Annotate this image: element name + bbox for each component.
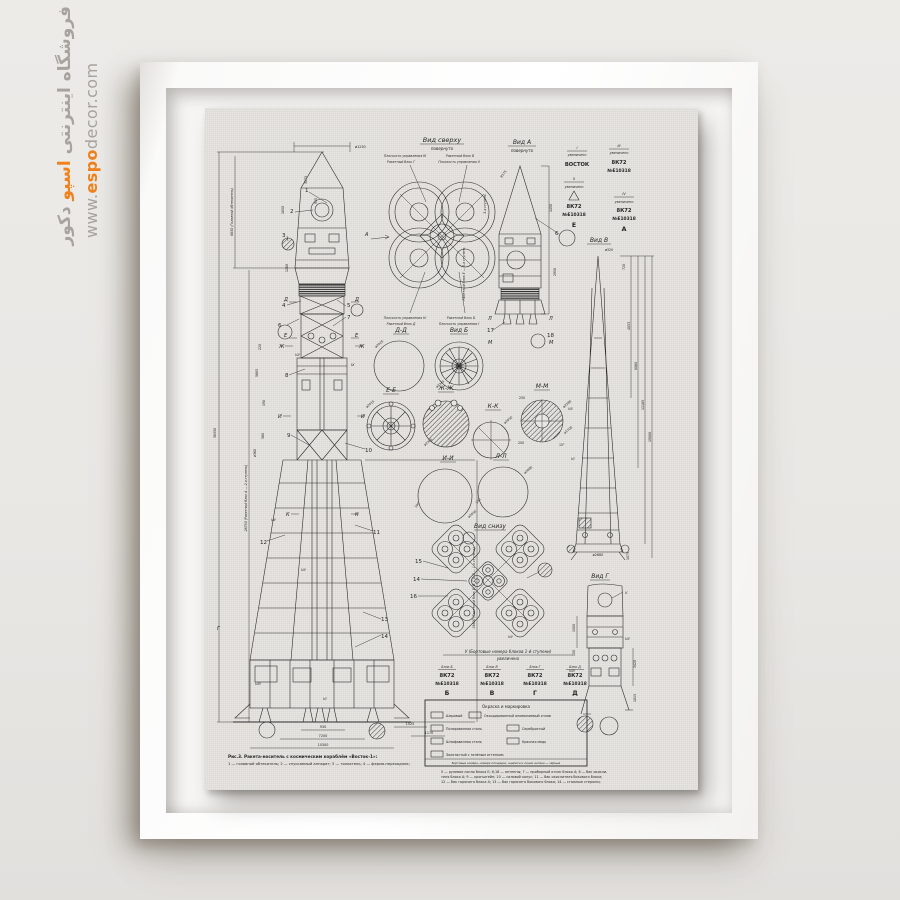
mark-vii-2: VII xyxy=(271,518,276,522)
letter-d-r: Д xyxy=(354,297,359,303)
dim-720: 720 xyxy=(622,264,626,270)
stamp-iii-enl: увеличено xyxy=(609,151,629,155)
top-view-title: Вид сверху xyxy=(423,136,462,144)
legend-title: Окраска и маркировка xyxy=(482,704,531,709)
caption-r1: 5 — рулевое сопло блока Е; 6,18 — антенн… xyxy=(441,770,608,774)
mark-vii-1: VII xyxy=(295,353,300,357)
view-b-vi: VI xyxy=(571,457,575,461)
section-vid-b-title: Вид Б xyxy=(450,327,468,334)
section-ee xyxy=(367,402,415,450)
tablev-title: V (Бортовые номера блоков 1-й ступени) xyxy=(465,649,552,654)
col-g-head: Блок Г xyxy=(530,665,541,669)
letter-k-l: К xyxy=(286,512,290,518)
section-dd xyxy=(374,341,424,391)
swatch-copper xyxy=(507,738,519,744)
letter-i-l: И xyxy=(278,414,282,420)
callout-9: 9 xyxy=(287,433,291,439)
arrow-a-label: А xyxy=(364,232,369,238)
section-ii xyxy=(418,469,472,523)
block-numbers-table: V (Бортовые номера блоков 1-й ступени) у… xyxy=(434,649,587,697)
interstage-and-stage2 xyxy=(295,268,349,460)
view-b-cone xyxy=(567,256,629,560)
cluster-vii: VII xyxy=(508,635,513,639)
watermark-brand-fa: اسپو xyxy=(55,160,75,200)
dim-560: 560 xyxy=(261,433,265,439)
plane-ii-label: Плоскость управления II xyxy=(438,160,479,164)
stamp-ii-serial: №Е10318 xyxy=(561,212,586,218)
callout-18: 18 xyxy=(547,333,554,339)
dim-10300: 10300 xyxy=(318,743,329,747)
section-kk-title: К-К xyxy=(488,403,499,410)
callout-2: 2 xyxy=(290,209,294,215)
letter-zh-r: Ж xyxy=(358,344,365,350)
block-b-label: Ракетный блок Б xyxy=(447,316,476,320)
dim-930: 930 xyxy=(320,725,326,729)
callout-1: 1 xyxy=(305,188,309,194)
plane-iii-label: Плоскость управления III xyxy=(384,154,426,158)
caption-r2: теля блока А; 9 — кронштейн; 10 — силово… xyxy=(441,775,602,779)
mark-vii-3: VII xyxy=(301,568,306,572)
dim-1450: 1450 xyxy=(549,204,553,212)
swatch-silver xyxy=(507,725,519,731)
swatch-oxid xyxy=(469,712,481,718)
dim-1850: 1850 xyxy=(281,206,285,214)
letter-l-r: Л xyxy=(548,316,553,322)
dim-2080: ø2080 xyxy=(523,465,533,475)
view-b-title: Вид В xyxy=(590,237,608,244)
marking-stamps: I увеличено ВОСТОК III увеличено 8К72 №Е… xyxy=(561,144,636,233)
letter-g: Г xyxy=(217,626,221,632)
tablev-col-v: Блок В 8К72 №Е10318 В xyxy=(479,665,504,697)
letter-e-l: Е xyxy=(284,333,288,339)
col-g-letter: Г xyxy=(533,690,537,697)
bottom-view-title: Вид снизу xyxy=(474,523,506,530)
dim-fairing: 6650 (Головной обтекатель) xyxy=(230,188,234,236)
swatch-ground xyxy=(431,738,443,744)
dim-1500: 1500 xyxy=(572,624,576,632)
legend-silver: Серебристый xyxy=(522,727,545,731)
stamp-i: I xyxy=(577,146,578,150)
legend-oxid: Оксидированный алюминиевый сплав xyxy=(484,714,551,718)
dim-stage2: 28750 (Ракетный блок А — 2-я ступень) xyxy=(244,465,248,532)
view-a-cone xyxy=(495,166,545,324)
col-b-code: 8К72 xyxy=(439,673,454,679)
col-v-letter: В xyxy=(490,690,495,697)
letter-i-r: И xyxy=(361,414,365,420)
dim-5685: 5685 xyxy=(255,369,259,377)
dim-2680: ø2680 xyxy=(593,553,604,557)
stamp-iv-code: 8К72 xyxy=(616,208,631,214)
top-view-rotated: повернуто xyxy=(431,146,454,151)
cross-sections: Д-Д ø2420 Вид Б ø2345 Е-Е ø2415 Ж-Ж xyxy=(365,327,573,523)
dim-total-length: 38350 xyxy=(213,428,217,438)
callout-10: 10 xyxy=(365,448,372,454)
stamp-iv: IV xyxy=(622,192,626,196)
callout-8: 8 xyxy=(285,373,289,379)
block-e-note: Ракетный блок Е — 3-я ступень xyxy=(462,247,466,300)
stamp-vostok: ВОСТОК xyxy=(565,162,590,168)
dim-2415: ø2415 xyxy=(365,399,375,409)
view-a-rotated: повернуто xyxy=(511,148,534,153)
watermark-brand-url: espo xyxy=(82,149,101,193)
dim-1075: 1075 xyxy=(626,552,630,560)
col-d-letter: Д xyxy=(572,690,578,697)
pod-br xyxy=(493,586,547,640)
dim-8060: 8060 xyxy=(634,362,638,370)
view-g: Вид Г 1500 150 3420 1015 VII VIII xyxy=(569,573,637,735)
legend-ground: Шлифованная сталь xyxy=(446,740,482,744)
dim-15deg: 15° xyxy=(559,443,565,447)
dim-200: 200 xyxy=(518,441,524,445)
dim-1025: 1025 xyxy=(406,722,415,726)
plane-iv-label: Плоскость управления IV xyxy=(384,316,427,320)
plane-i-label: Плоскость управления I xyxy=(439,322,479,326)
dim-1230: ø1230 xyxy=(355,145,366,149)
stamp-triangle xyxy=(569,191,579,200)
letter-d-l: Д xyxy=(283,297,288,303)
col-v-head: Блок В xyxy=(486,665,497,669)
callout-13: 13 xyxy=(381,617,388,623)
watermark-url: www.espodecor.com xyxy=(79,6,104,238)
col-b-head: Блок Б xyxy=(441,665,453,669)
letter-l-l: Л xyxy=(487,316,492,322)
block-v-label: Ракетный блок В xyxy=(446,154,474,158)
callout-12: 12 xyxy=(260,540,267,546)
tablev-sub: увеличено xyxy=(496,656,520,661)
section-ll-title: Л-Л xyxy=(494,453,507,460)
callout-3: 3 xyxy=(282,233,286,239)
callout-17: 17 xyxy=(487,328,494,334)
dim-11165: 11165 xyxy=(641,400,645,410)
col-b-letter: Б xyxy=(445,690,450,697)
dim-r175: R175 xyxy=(500,169,508,178)
callout-18-marker xyxy=(531,334,545,348)
legend-polished: Полированная сталь xyxy=(446,727,482,731)
stamp-ii: II xyxy=(573,177,575,181)
callout-14: 14 xyxy=(381,634,388,640)
caption-title: Рис.3. Ракета-носитель с космическим кор… xyxy=(228,754,378,759)
dim-320: ø320 xyxy=(605,248,613,252)
engine-cluster xyxy=(429,522,552,640)
view-g-title: Вид Г xyxy=(591,573,609,580)
stamp-iv-enl: увеличено xyxy=(614,200,634,204)
product-photo: { "watermark":{ "store_fa_pre":"فروشگاه … xyxy=(0,0,900,900)
caption-r3: 12 — бак горючего блока А; 13 — бак горю… xyxy=(441,780,601,784)
dim-220: 220 xyxy=(258,344,262,350)
mark-ix: IX xyxy=(351,363,355,367)
top-view: Вид сверху повернуто Плоскость управлени… xyxy=(364,136,495,326)
section-zhzh-title: Ж-Ж xyxy=(437,385,454,392)
weld-marks: VII IX VII VII VIII VI xyxy=(255,353,355,701)
caption-line2: 1 — головной обтекатель; 2 — спускаемый … xyxy=(228,762,410,766)
callout-15: 15 xyxy=(415,559,422,565)
dim-360: ø360 xyxy=(253,449,257,457)
block-g-label: Ракетный блок Г xyxy=(387,160,415,164)
view-a-title: Вид А xyxy=(513,139,531,146)
mark-vi: VI xyxy=(323,697,327,701)
section-ii-title: И-И xyxy=(442,455,454,462)
col-g-code: 8К72 xyxy=(527,673,542,679)
callout-4: 4 xyxy=(282,303,286,309)
section-dd-title: Д-Д xyxy=(394,327,407,334)
callout-11: 11 xyxy=(373,530,380,536)
callout-14b: 14 xyxy=(413,577,420,583)
col-v-num: №Е10318 xyxy=(479,681,504,687)
dim-3420: 3420 xyxy=(633,660,637,668)
stage3-note: 3-я ступень xyxy=(483,194,487,214)
letter-m-l: М xyxy=(488,340,493,346)
col-v-code: 8К72 xyxy=(484,673,499,679)
view-b-vii: VII xyxy=(568,407,573,411)
dim-19080: 19080 xyxy=(648,432,652,442)
dim-2050: ø2050 xyxy=(467,509,477,519)
figure-captions: Рис.3. Ракета-носитель с космическим кор… xyxy=(228,754,608,784)
callout-16: 16 xyxy=(410,594,417,600)
section-ll xyxy=(478,467,528,517)
view-b: Вид В ø320 4053 8060 11165 19080 720 107… xyxy=(567,237,654,560)
vostok-blueprint: 38350 6650 (Головной обтекатель) 28750 (… xyxy=(205,108,698,790)
stamp-ii-letter: Е xyxy=(572,222,576,229)
section-ee-title: Е-Е xyxy=(386,387,396,394)
canvas-print: 38350 6650 (Головной обтекатель) 28750 (… xyxy=(205,108,698,790)
bottom-view: Вид снизу xyxy=(410,522,552,640)
booster-cluster-top xyxy=(389,182,495,288)
dim-1170: 1170 xyxy=(425,731,434,735)
dim-190: 190 xyxy=(262,400,266,406)
dim-250: 250 xyxy=(519,396,525,400)
stamp-ii-enl: увеличено xyxy=(564,185,584,189)
stamp-iv-serial: №Е10318 xyxy=(611,216,636,222)
view-g-body xyxy=(577,584,633,735)
picture-frame: 38350 6650 (Головной обтекатель) 28750 (… xyxy=(140,62,758,839)
swatch-sharovy xyxy=(431,712,443,718)
legend-sharovy: Шаровый xyxy=(446,714,462,718)
antenna-marker xyxy=(559,230,575,246)
view-a: Вид А повернуто R175 1450 2950 17 18 6 xyxy=(462,139,575,348)
stamp-i-enl: увеличено xyxy=(567,153,587,157)
stamp-iii: III xyxy=(618,144,621,148)
section-mm xyxy=(521,400,563,442)
col-b-num: №Е10318 xyxy=(434,681,459,687)
dim-190b: 190 xyxy=(414,501,421,508)
letter-k-r: К xyxy=(355,512,359,518)
dim-7200: 7200 xyxy=(319,734,328,738)
block-d-label: Ракетный блок Д xyxy=(387,322,416,326)
callout-5-marker xyxy=(351,304,363,316)
stamp-iv-letter: А xyxy=(622,226,627,233)
view-g-v: V xyxy=(625,591,628,595)
col-g-num: №Е10318 xyxy=(522,681,547,687)
stamp-iii-serial: №Е10318 xyxy=(606,168,631,174)
dim-4053: 4053 xyxy=(627,322,631,330)
legend-note: Бортовые номера, номера площадок, надпис… xyxy=(452,761,561,765)
dim-1015: 1015 xyxy=(633,694,637,702)
letter-zh-l: Ж xyxy=(278,344,285,350)
bottom-view-marker xyxy=(463,532,475,544)
tablev-col-g: Блок Г 8К72 №Е10318 Г xyxy=(522,665,547,697)
paint-legend: Окраска и маркировка Шаровый Оксидирован… xyxy=(425,700,587,766)
dim-2050b: ø2050 xyxy=(503,415,513,425)
store-watermark: فروشگاه اینترنتی اسپو دکور www.espodecor… xyxy=(52,6,104,238)
callout-5: 5 xyxy=(347,303,351,309)
col-d-head: Блок Д xyxy=(569,665,581,669)
legend-golden: Золотистый с зелёным оттенком xyxy=(446,753,504,757)
letter-m-r: М xyxy=(549,340,554,346)
first-stage-boosters xyxy=(233,460,411,739)
col-d-num: №Е10318 xyxy=(562,681,587,687)
view-g-vii: VII xyxy=(625,637,630,641)
tablev-col-b: Блок Б 8К72 №Е10318 Б xyxy=(434,665,459,697)
section-mm-title: М-М xyxy=(536,383,549,390)
col-d-code: 8К72 xyxy=(567,673,582,679)
callout-7: 7 xyxy=(347,315,351,321)
dim-1700: ø1700 xyxy=(563,425,573,435)
mark-viii: VIII xyxy=(255,682,261,686)
stamp-ii-code: 8К72 xyxy=(566,204,581,210)
legend-copper: Красная медь xyxy=(522,740,546,744)
watermark-store-name: فروشگاه اینترنتی اسپو دکور xyxy=(52,6,79,238)
stamp-iii-code: 8К72 xyxy=(611,160,626,166)
dim-1260: 1260 xyxy=(285,264,289,272)
dim-2950: 2950 xyxy=(553,268,557,276)
swatch-golden xyxy=(431,751,443,757)
